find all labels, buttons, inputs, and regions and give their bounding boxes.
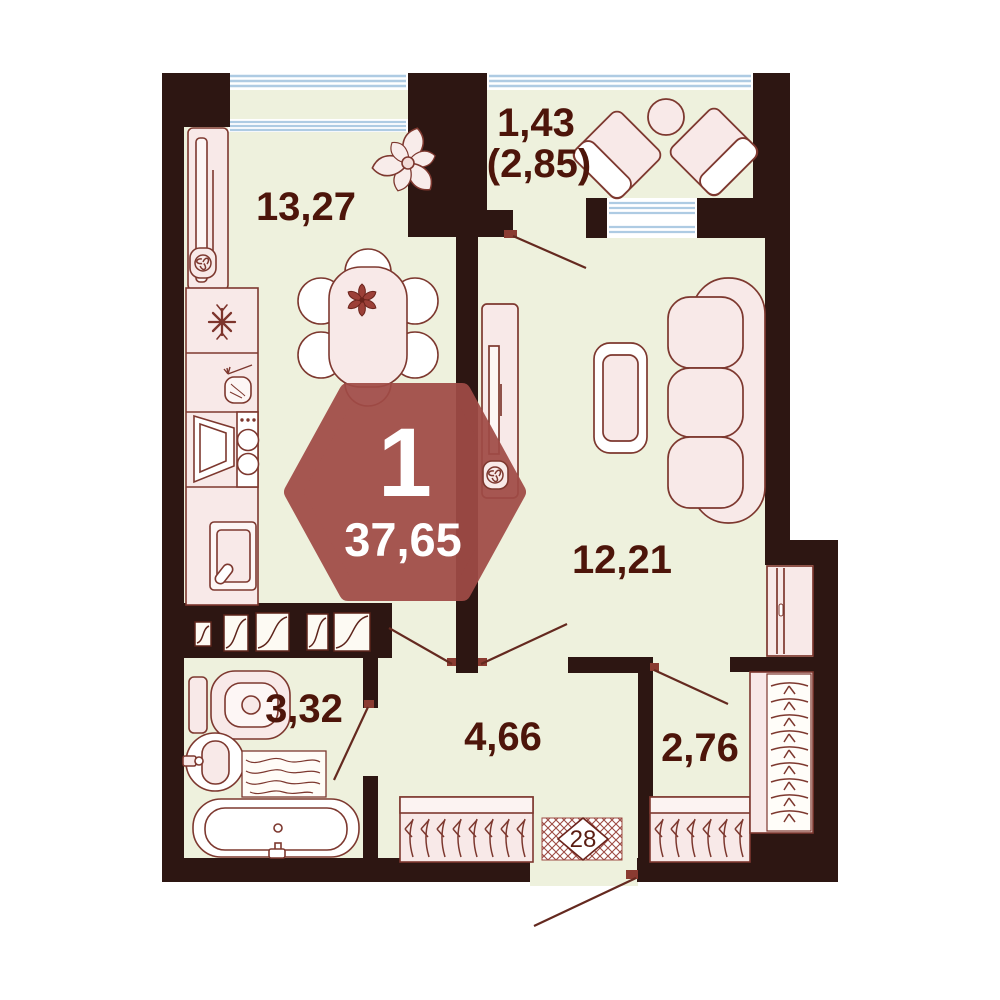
niche-cabinet: [767, 566, 813, 656]
tall-cabinet: [188, 128, 228, 290]
wardrobe-room-closet: [650, 797, 750, 862]
vent-shaft-icon: [334, 613, 370, 651]
kitchen-area-label: 13,27: [256, 185, 356, 229]
kitchen-window: [228, 70, 408, 90]
bathroom-area-label: 3,32: [265, 687, 343, 731]
unit-total-area: 37,65: [344, 513, 462, 566]
kitchen-inner-window: [228, 119, 408, 132]
hall-wardrobe: [400, 797, 533, 862]
bathtub: [193, 799, 359, 858]
hallway-area-label: 4,66: [464, 715, 542, 759]
vent-shaft-icon: [195, 622, 211, 646]
balcony-living-window: [607, 198, 697, 238]
dining-table: [329, 267, 407, 387]
vent-shaft-icon: [307, 614, 328, 650]
unit-badge[interactable]: 1 37,65: [293, 392, 517, 592]
wardrobe-area-label: 2,76: [661, 726, 739, 770]
floor-plan-page: 13,27 1,43 (2,85) 12,21 3,32 4,66 2,76 1…: [0, 0, 1000, 1000]
coffee-table: [594, 343, 647, 453]
floor-plan: 13,27 1,43 (2,85) 12,21 3,32 4,66 2,76 1…: [0, 0, 1000, 1000]
living-area-label: 12,21: [572, 538, 672, 582]
entrance-badge: 28: [542, 818, 622, 860]
apartment-number: 28: [570, 826, 597, 853]
washing-machine: [210, 522, 256, 590]
balcony-table: [648, 99, 684, 135]
vent-shaft-icon: [256, 613, 289, 651]
balcony-area-label: 1,43: [497, 101, 575, 145]
balcony-window: [487, 70, 753, 90]
bath-mat: [242, 751, 326, 797]
vent-shaft-icon: [224, 615, 248, 651]
unit-rooms-count: 1: [378, 408, 432, 517]
tv-cabinet-badge: [483, 461, 508, 489]
sofa: [668, 278, 765, 523]
balcony-total-area-label: (2,85): [487, 142, 592, 186]
hob-icon: [237, 412, 259, 487]
wardrobe-rail: [750, 672, 813, 833]
